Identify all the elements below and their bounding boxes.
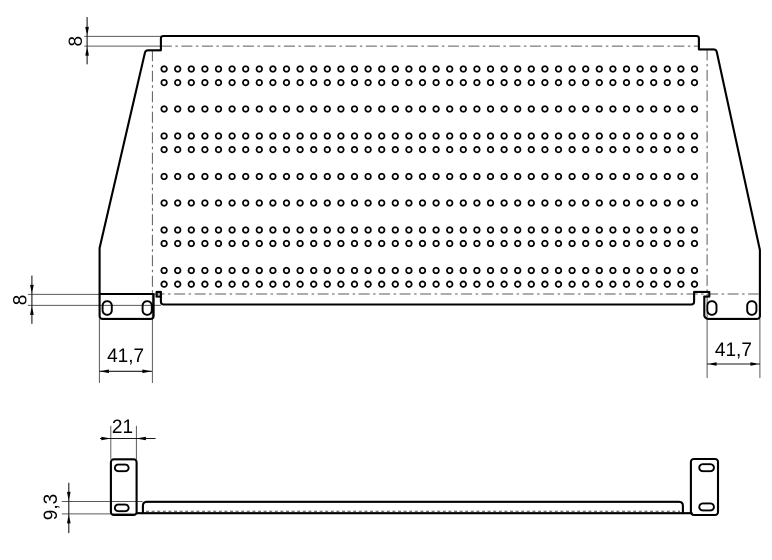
svg-text:41,7: 41,7: [107, 346, 144, 367]
svg-text:9,3: 9,3: [41, 494, 62, 520]
svg-text:41,7: 41,7: [715, 340, 752, 361]
svg-text:8: 8: [11, 295, 32, 306]
svg-text:21: 21: [112, 417, 133, 438]
svg-text:8: 8: [66, 36, 87, 47]
